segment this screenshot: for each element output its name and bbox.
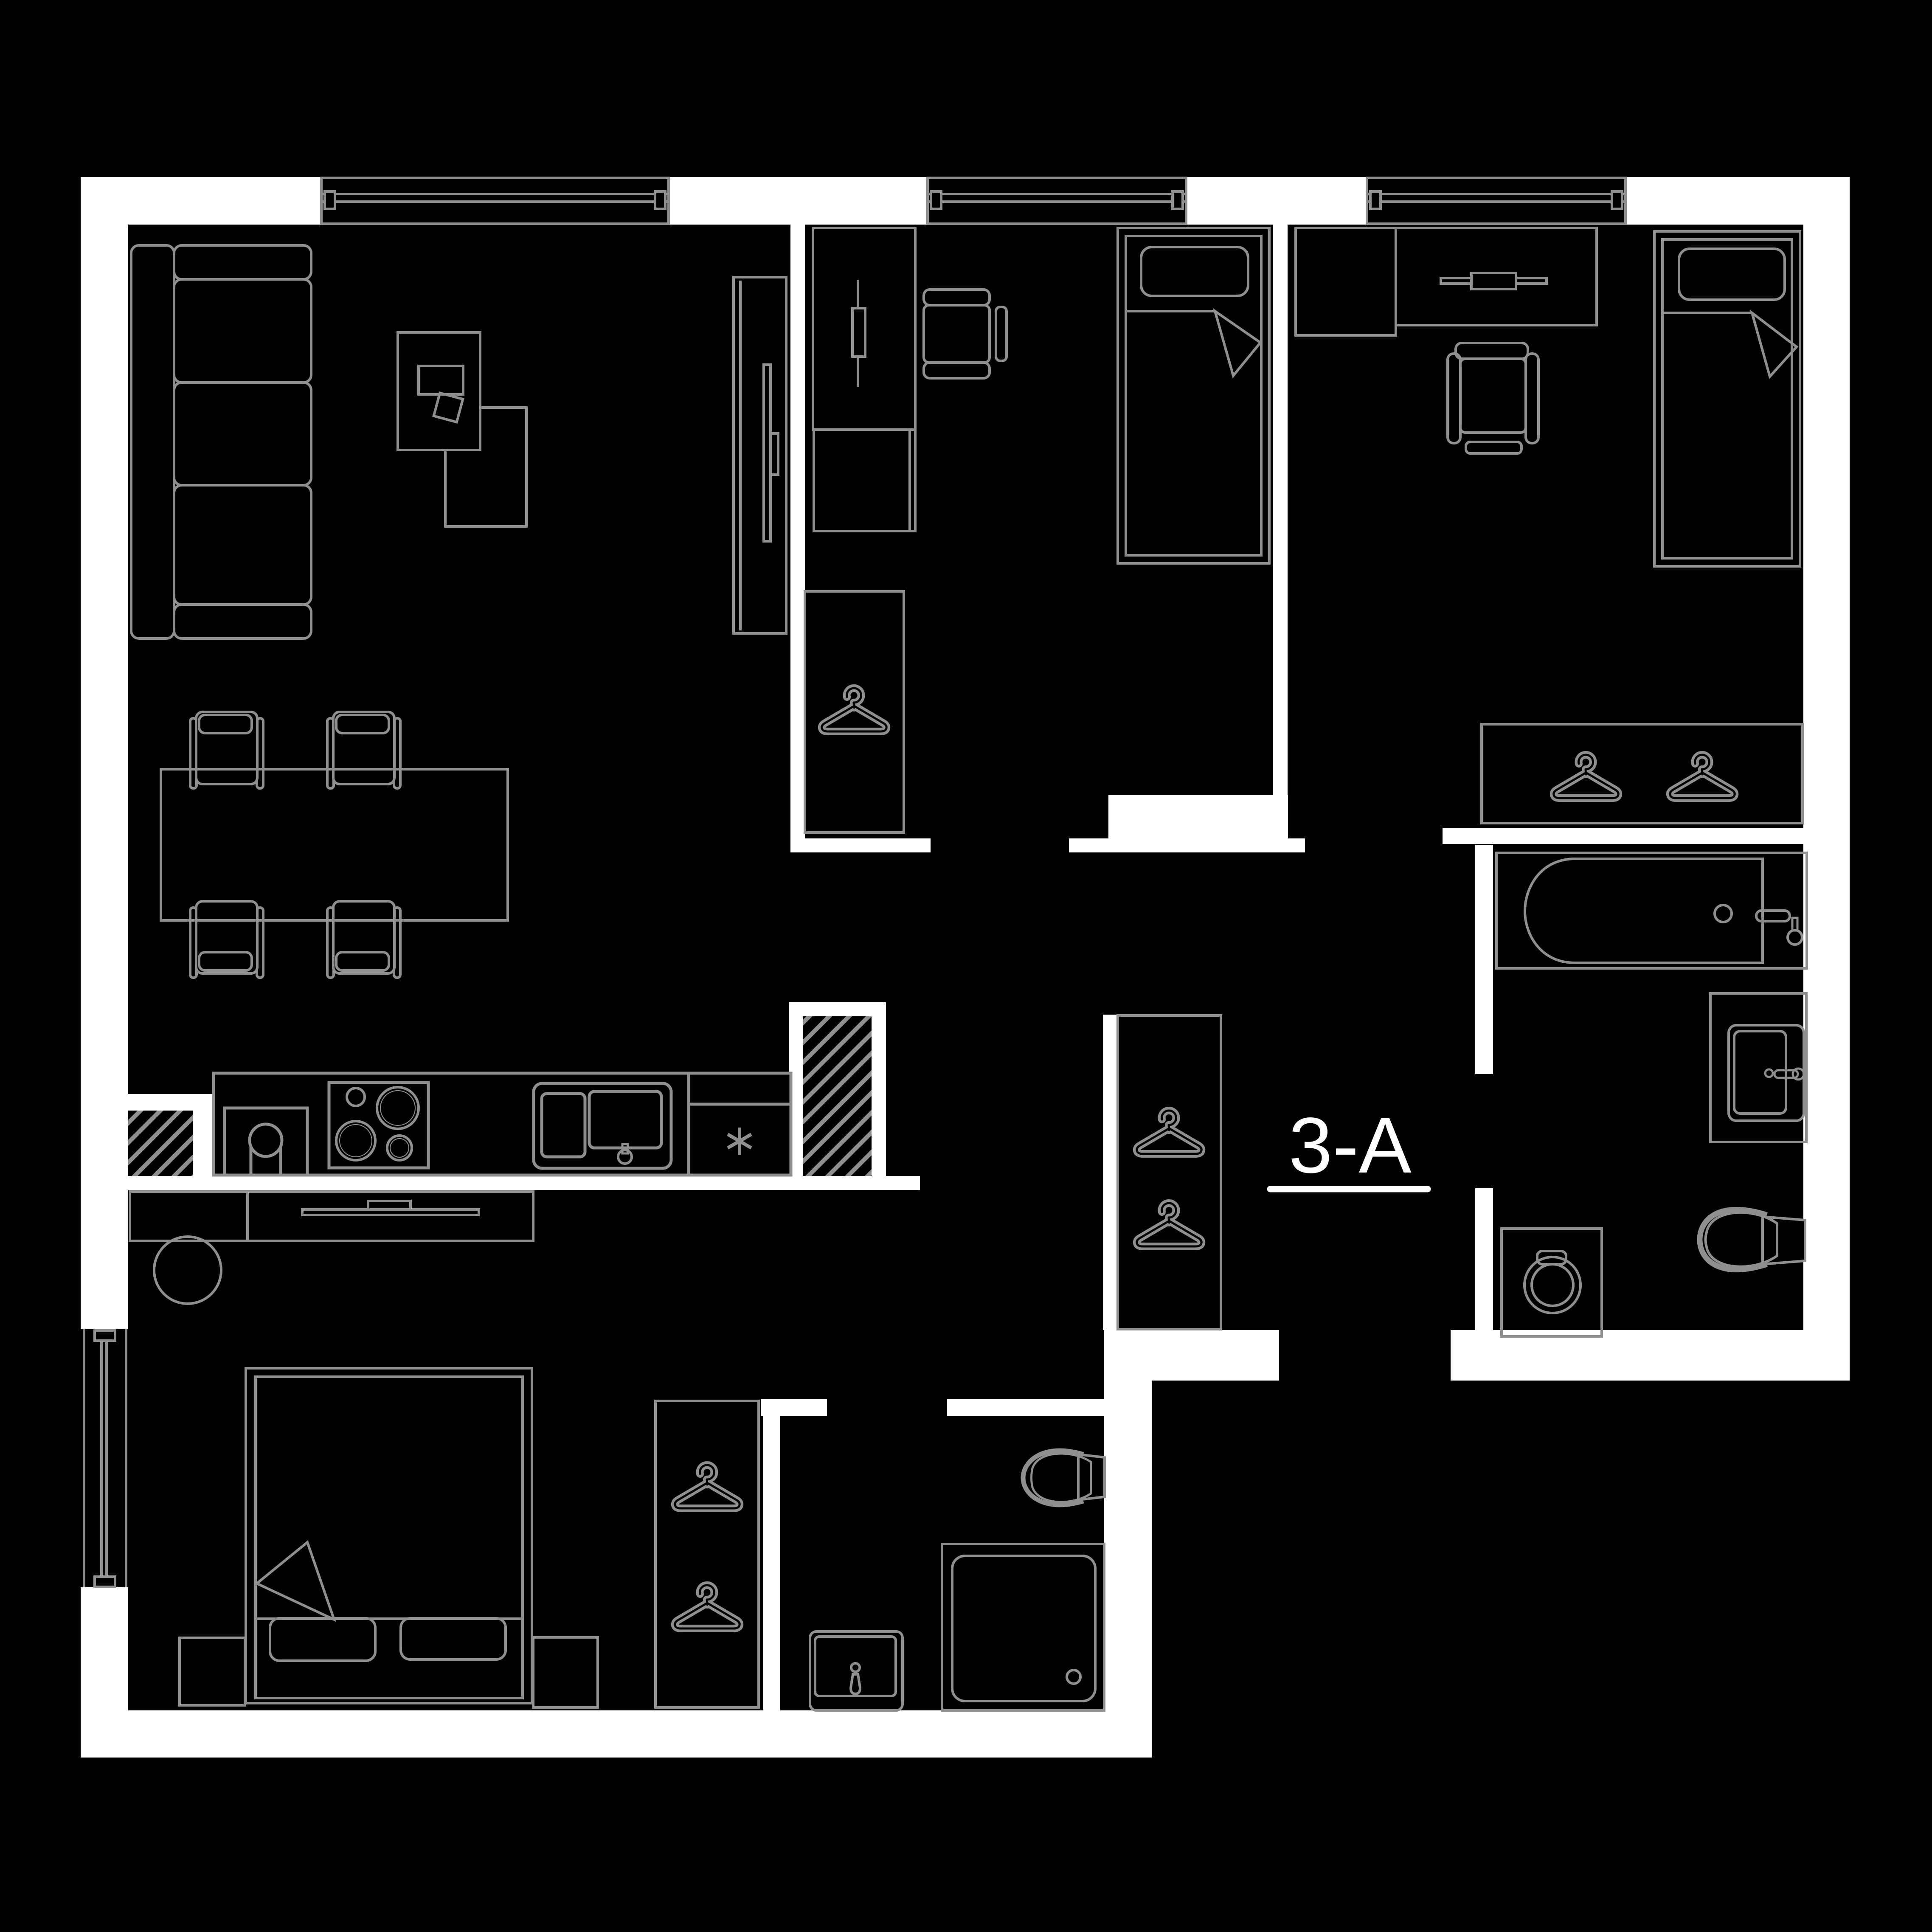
svg-text:3-A: 3-A xyxy=(1288,1102,1411,1190)
